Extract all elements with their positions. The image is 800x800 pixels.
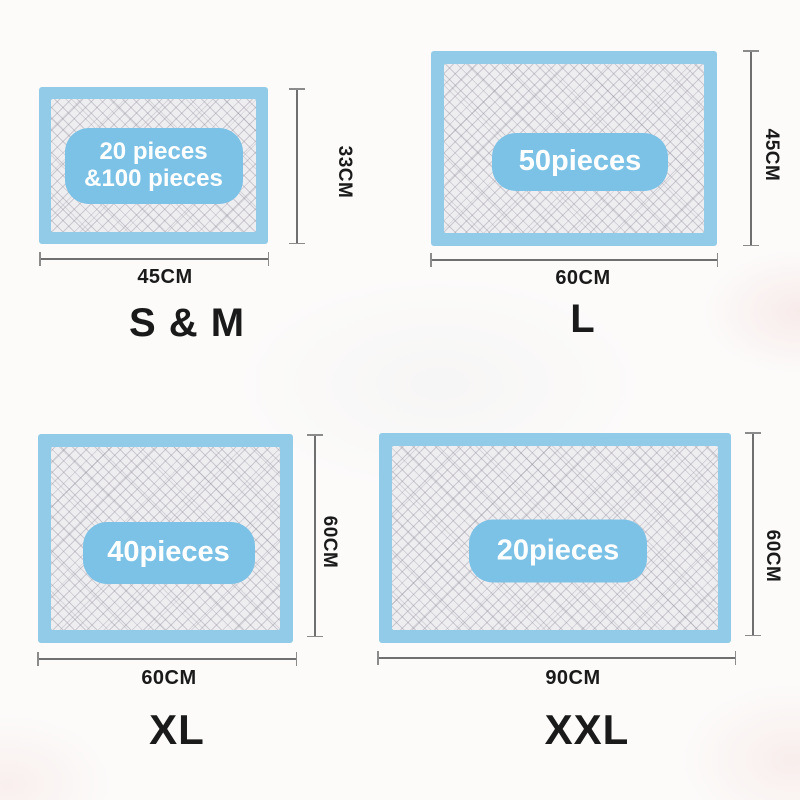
pieces-label-line1: 20pieces — [497, 535, 620, 567]
width-dimension-label: 90CM — [513, 667, 633, 689]
width-dimension-line — [377, 657, 736, 659]
height-dimension-line — [752, 432, 754, 636]
size-name-label: XXL — [487, 707, 687, 753]
size-variant-xxl: 20pieces 60CM 90CM XXL — [0, 0, 800, 800]
pet-pad-size-chart: 20 pieces &100 pieces 33CM 45CM S & M 50… — [0, 0, 800, 800]
pieces-badge: 20pieces — [469, 520, 647, 583]
pad-illustration: 20pieces — [379, 433, 731, 643]
height-dimension-label: 60CM — [761, 526, 783, 586]
